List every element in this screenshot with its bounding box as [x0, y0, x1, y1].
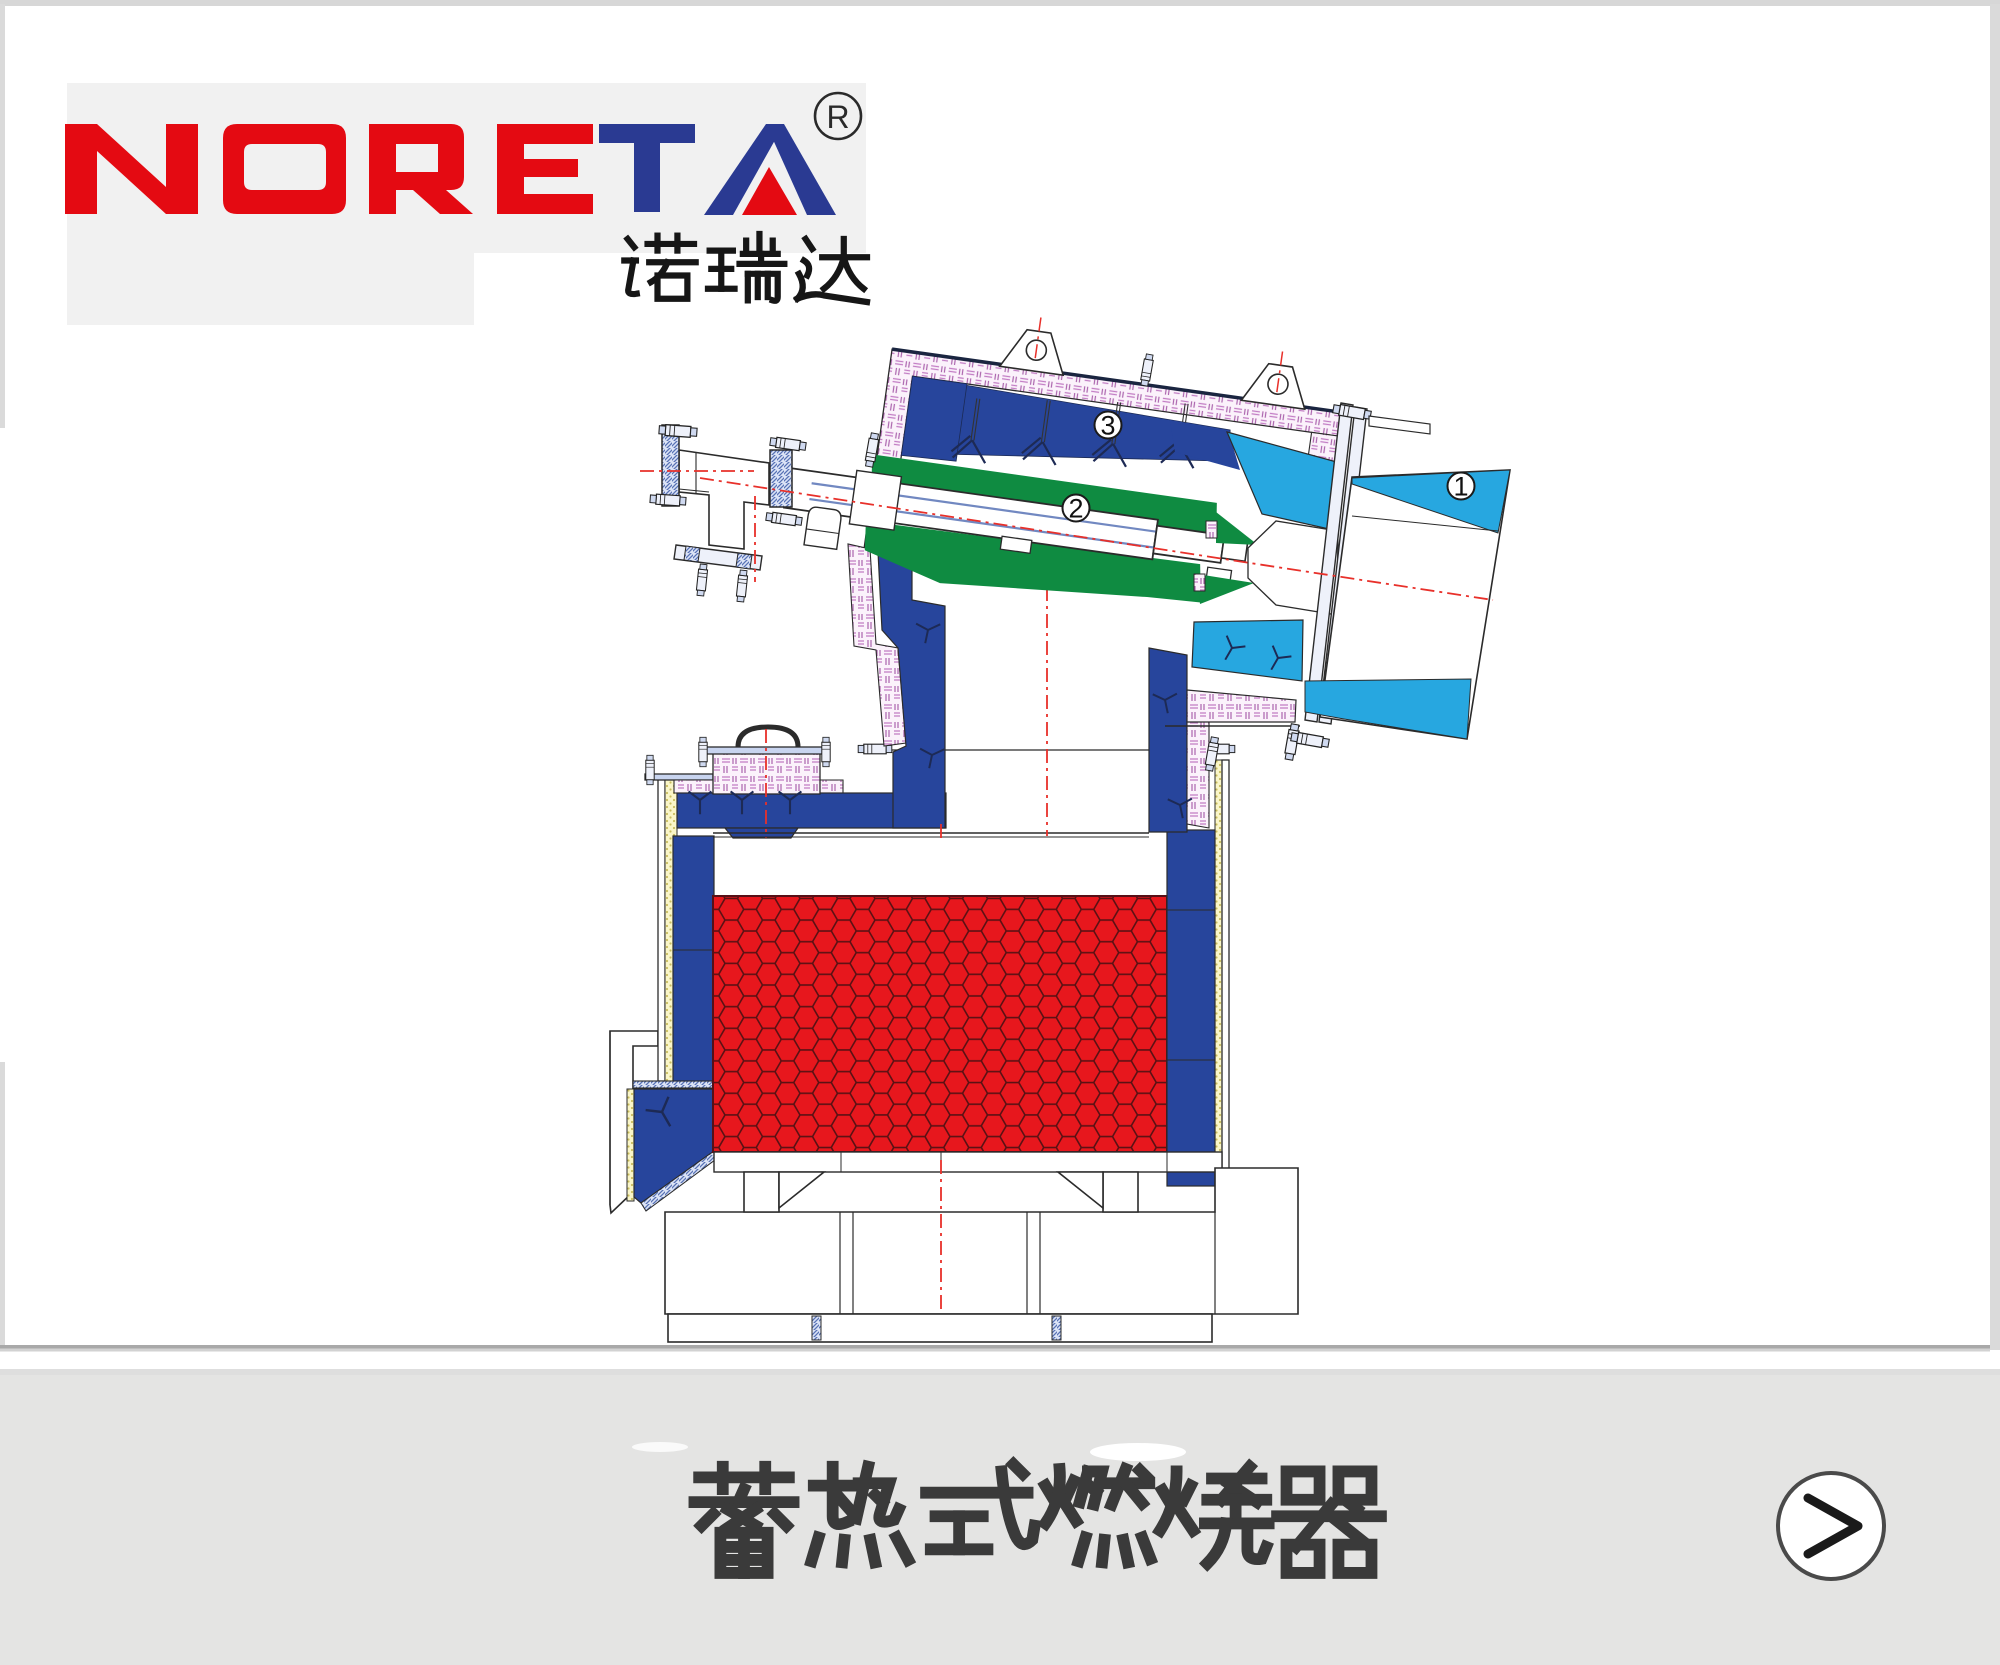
svg-text:R: R [826, 99, 849, 135]
svg-text:2: 2 [1068, 494, 1083, 524]
svg-text:1: 1 [1453, 472, 1468, 502]
svg-text:3: 3 [1100, 411, 1115, 441]
